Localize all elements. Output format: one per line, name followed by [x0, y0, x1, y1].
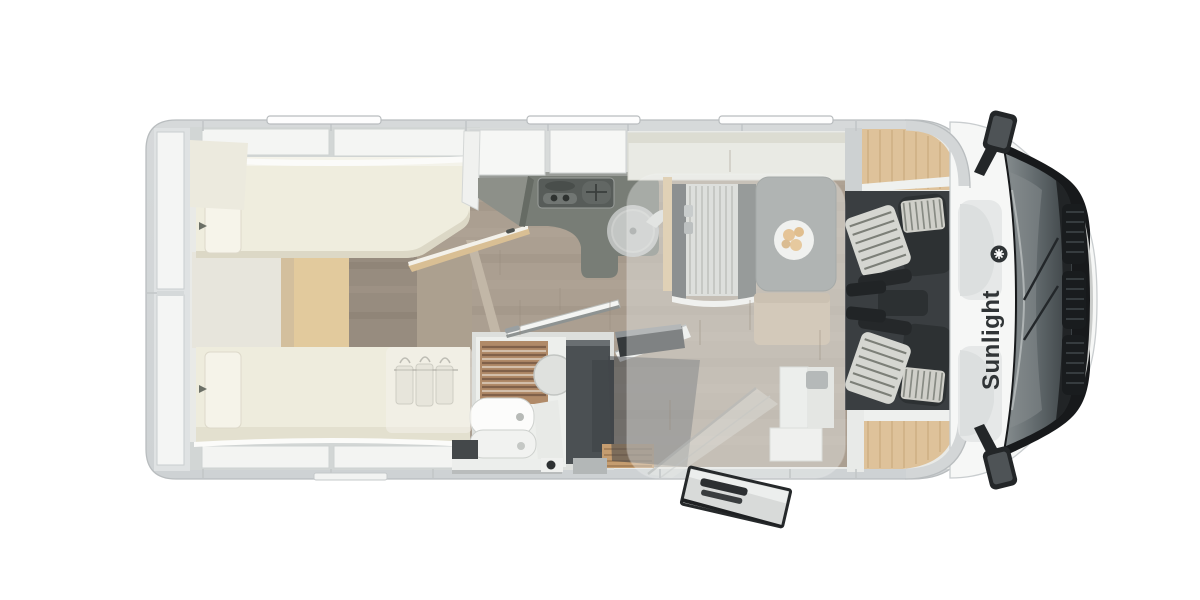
- svg-text:Sunlight: Sunlight: [978, 290, 1005, 390]
